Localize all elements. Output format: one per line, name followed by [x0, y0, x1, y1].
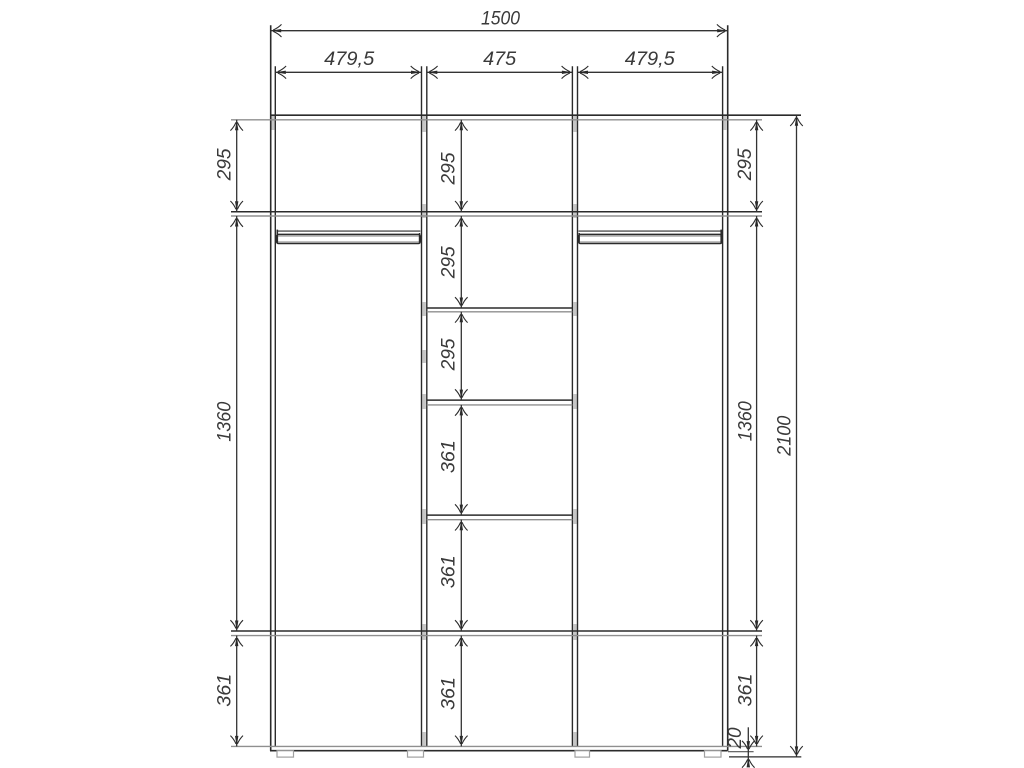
svg-text:361: 361	[439, 677, 460, 710]
svg-text:479,5: 479,5	[324, 49, 374, 70]
svg-text:295: 295	[439, 152, 460, 185]
svg-text:475: 475	[483, 49, 516, 70]
svg-text:2100: 2100	[775, 415, 796, 456]
svg-text:361: 361	[439, 555, 460, 588]
svg-text:20: 20	[725, 727, 746, 749]
svg-text:295: 295	[439, 338, 460, 371]
svg-text:295: 295	[735, 148, 756, 181]
svg-text:479,5: 479,5	[625, 49, 675, 70]
svg-text:361: 361	[736, 674, 757, 707]
svg-text:295: 295	[439, 246, 460, 279]
svg-text:295: 295	[214, 148, 235, 181]
svg-text:361: 361	[214, 674, 235, 707]
svg-text:1360: 1360	[736, 401, 757, 441]
svg-text:361: 361	[439, 440, 460, 473]
svg-text:1500: 1500	[481, 8, 520, 29]
svg-text:1360: 1360	[214, 401, 235, 441]
